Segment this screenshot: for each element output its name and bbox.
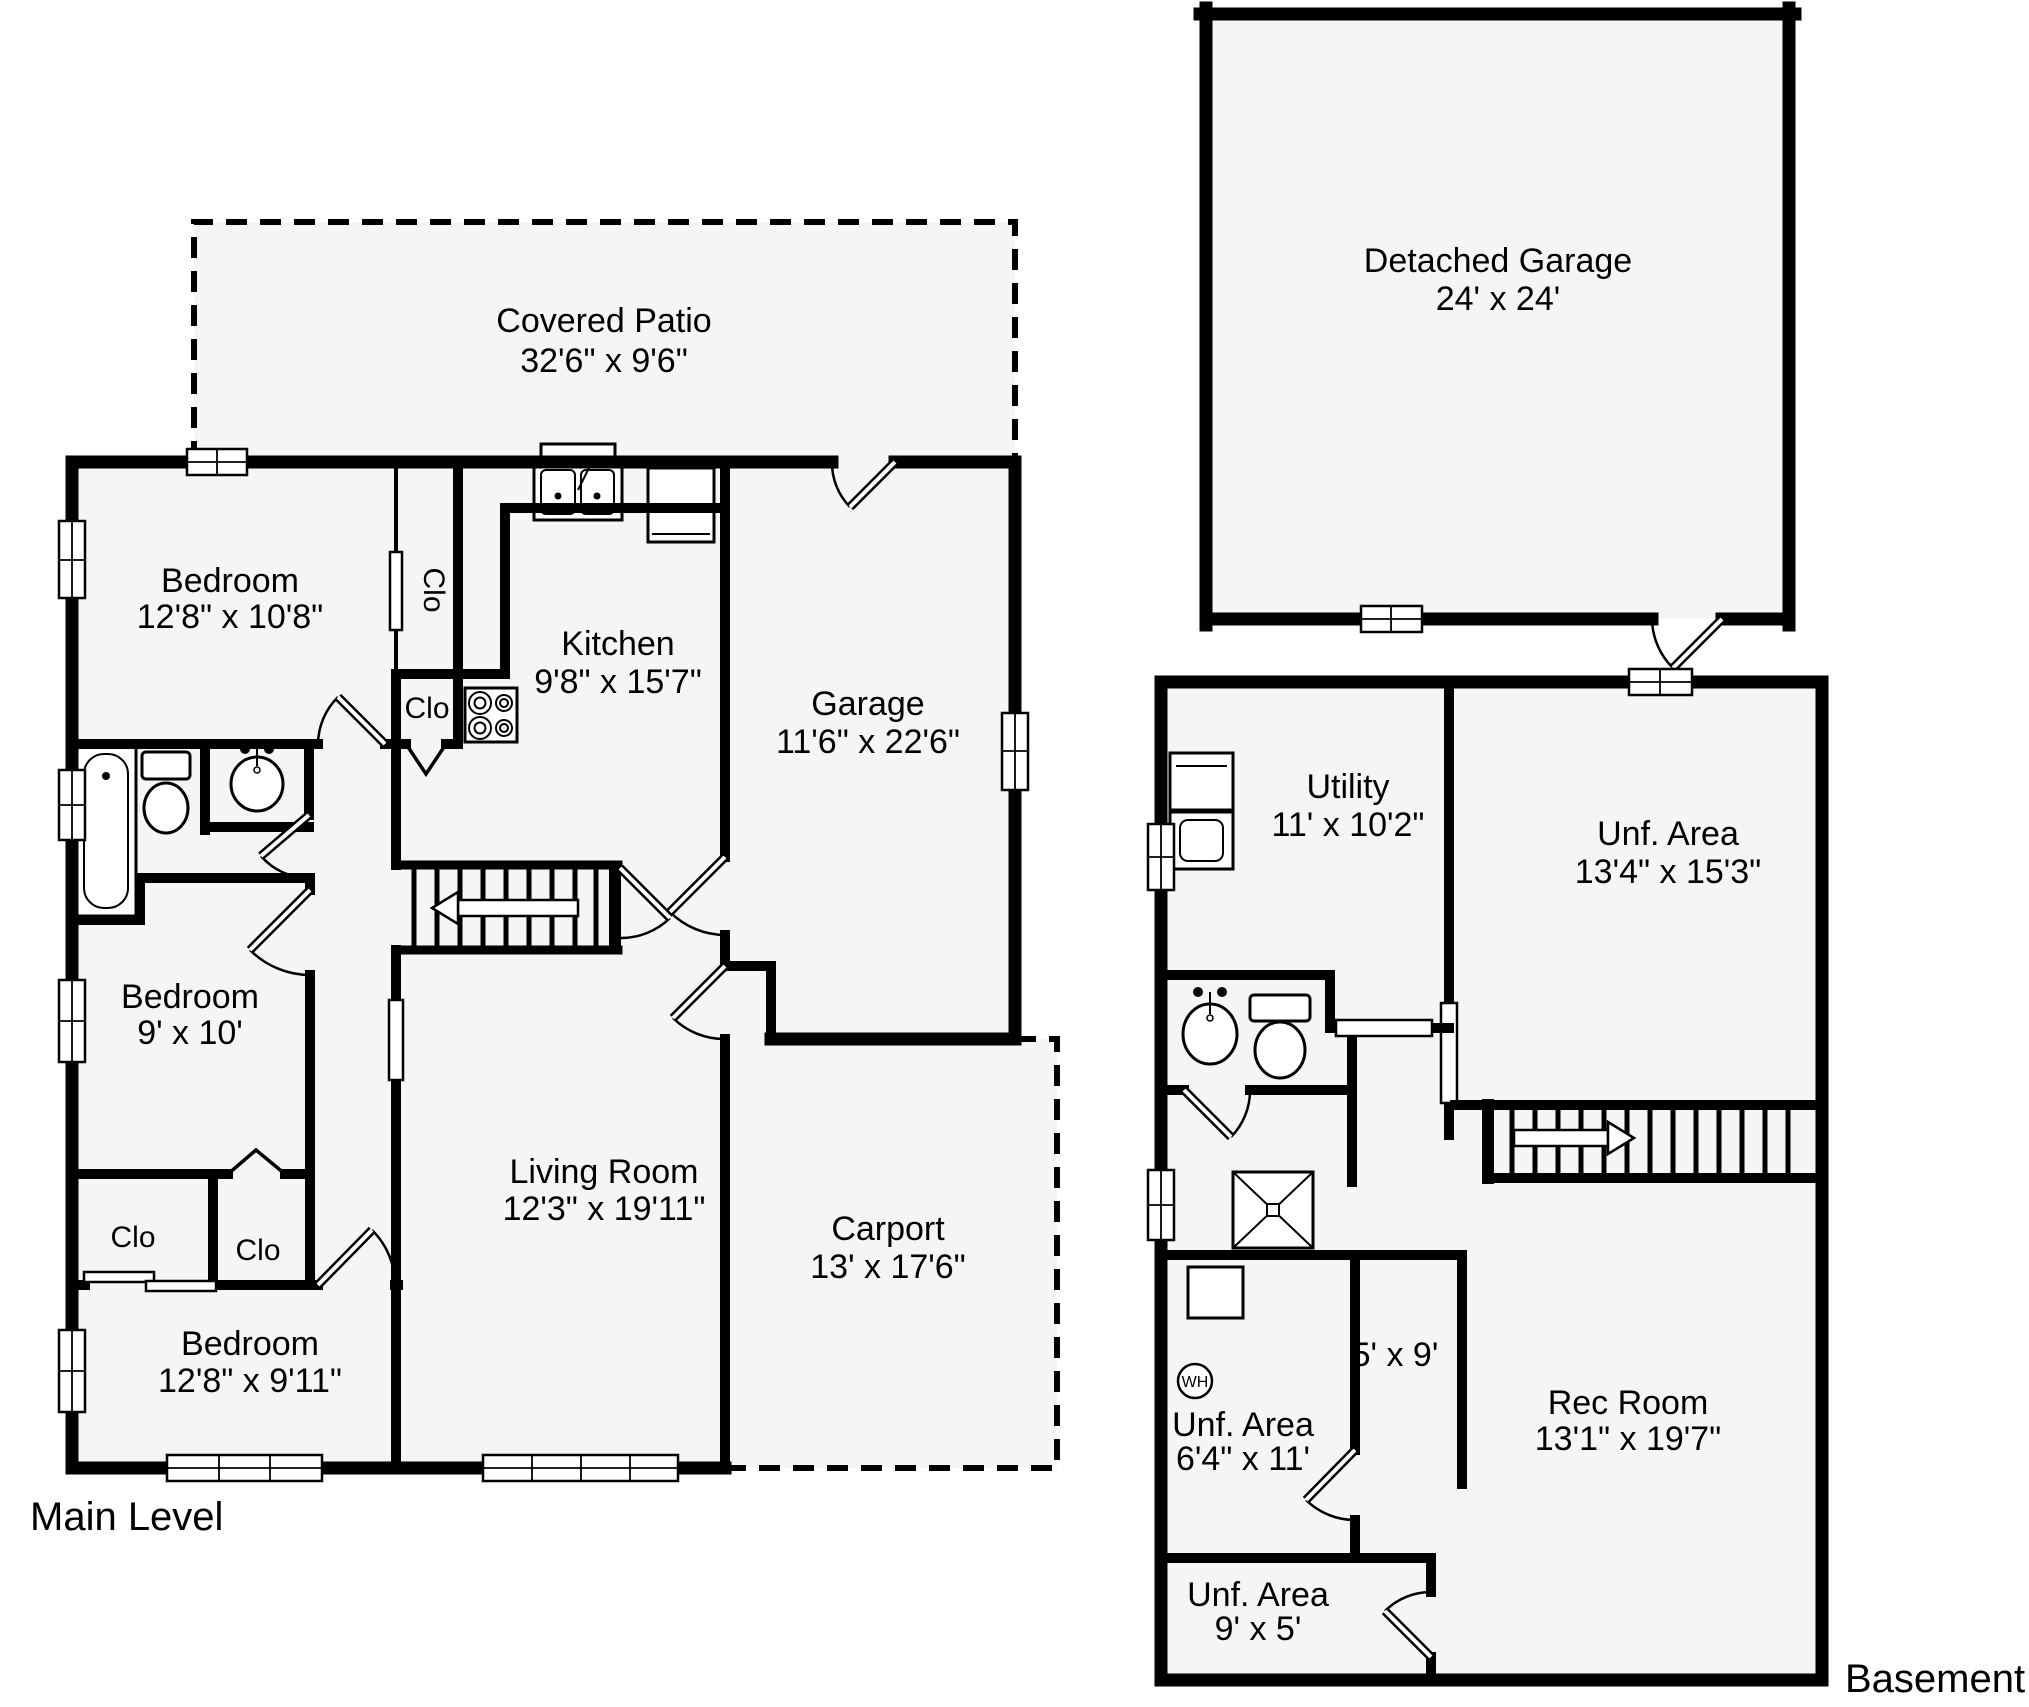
closet-mid-label: Clo xyxy=(404,692,449,725)
stove-icon xyxy=(465,688,517,742)
garage-name: Garage xyxy=(811,685,924,723)
window-basement-left-2 xyxy=(1148,1170,1174,1240)
toilet-icon xyxy=(142,752,190,833)
water-heater-icon: WH xyxy=(1178,1364,1212,1398)
floor-plan-page: WH xyxy=(0,0,2029,1707)
small-room-dims: 5' x 9' xyxy=(1352,1336,1439,1374)
covered-patio-dims: 32'6" x 9'6" xyxy=(520,342,688,380)
closet-upper-label: Clo xyxy=(417,567,450,612)
unf-area-mid-name: Unf. Area xyxy=(1172,1406,1314,1444)
bedroom-middle-dims: 9' x 10' xyxy=(137,1014,243,1052)
carport-name: Carport xyxy=(831,1210,945,1248)
unf-area-bottom-name: Unf. Area xyxy=(1187,1576,1329,1614)
washer-icon xyxy=(1170,812,1233,869)
utility-name: Utility xyxy=(1306,768,1389,806)
covered-patio-name: Covered Patio xyxy=(496,302,711,340)
kitchen-name: Kitchen xyxy=(561,625,674,663)
bedroom-top-dims: 12'8" x 10'8" xyxy=(137,598,323,636)
shower-icon xyxy=(1233,1172,1313,1248)
closet-upper-opening xyxy=(390,552,402,630)
stairs-down-arrow xyxy=(458,900,578,916)
detached-garage-dims: 24' x 24' xyxy=(1436,280,1561,318)
utility-dims: 11' x 10'2" xyxy=(1272,806,1425,844)
unf-area-mid-dims: 6'4" x 11' xyxy=(1176,1440,1310,1478)
window-left-2 xyxy=(59,770,85,840)
utility-door-opening xyxy=(1441,1003,1457,1103)
unf-area-top-name: Unf. Area xyxy=(1597,815,1739,853)
window-garage-right xyxy=(1002,713,1028,790)
living-room-name: Living Room xyxy=(510,1153,699,1191)
floor-plan-svg: WH xyxy=(0,0,2029,1707)
slider-door-closet-left-a xyxy=(84,1272,154,1282)
door-detached-garage xyxy=(1652,619,1722,668)
storage-box-icon xyxy=(1188,1267,1243,1318)
window-left-4 xyxy=(59,1330,85,1412)
carport-dims: 13' x 17'6" xyxy=(810,1248,966,1286)
rec-room-dims: 13'1" x 19'7" xyxy=(1535,1420,1721,1458)
window-detached-garage xyxy=(1361,606,1422,632)
window-bottom-living xyxy=(483,1455,678,1481)
water-heater-label: WH xyxy=(1182,1374,1209,1391)
dryer-icon xyxy=(1170,753,1233,810)
window-bedroom-top xyxy=(187,449,247,475)
rec-room-name: Rec Room xyxy=(1548,1384,1709,1422)
bedroom-bottom-name: Bedroom xyxy=(181,1325,319,1363)
bath-hall-door-opening xyxy=(1336,1020,1432,1036)
closet-left-label: Clo xyxy=(110,1221,155,1254)
kitchen-dims: 9'8" x 15'7" xyxy=(534,663,702,701)
window-left-1 xyxy=(59,521,85,598)
unf-area-bottom-dims: 9' x 5' xyxy=(1215,1610,1302,1648)
unf-area-top-dims: 13'4" x 15'3" xyxy=(1575,853,1761,891)
detached-garage-name: Detached Garage xyxy=(1364,242,1632,280)
bedroom-bottom-dims: 12'8" x 9'11" xyxy=(158,1362,342,1400)
living-room-opening xyxy=(389,1000,403,1080)
basement-toilet-icon xyxy=(1250,995,1310,1078)
window-basement-left-1 xyxy=(1148,824,1174,890)
window-left-3 xyxy=(59,980,85,1062)
slider-door-closet-left-b xyxy=(146,1281,216,1291)
bedroom-middle-name: Bedroom xyxy=(121,978,259,1016)
main-level-title: Main Level xyxy=(30,1495,223,1539)
basement-stairs-up-arrow xyxy=(1514,1130,1608,1146)
living-room-dims: 12'3" x 19'11" xyxy=(503,1190,706,1228)
basement-title: Basement xyxy=(1845,1657,2025,1701)
bedroom-top-name: Bedroom xyxy=(161,562,299,600)
closet-right-label: Clo xyxy=(235,1234,280,1267)
window-basement-top xyxy=(1629,669,1692,695)
garage-dims: 11'6" x 22'6" xyxy=(776,723,960,761)
window-bottom-bedroom xyxy=(167,1455,322,1481)
